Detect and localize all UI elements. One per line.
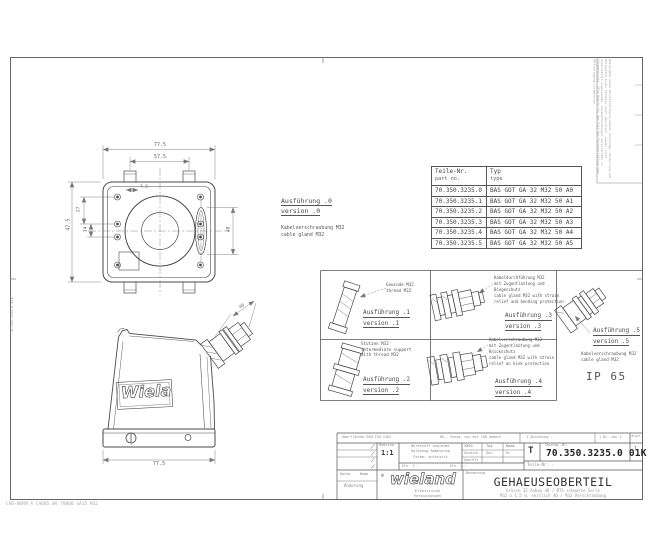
tb-appr-r1c: Rz xyxy=(506,452,510,456)
parts-table-header: Teile-Nr.part no. Typtype xyxy=(432,167,582,186)
tb-t-label: T xyxy=(528,447,533,456)
version-5-subtitle: version .5 xyxy=(593,339,629,347)
part-no-cell: 70.350.3235.3 xyxy=(432,217,487,228)
part-no-cell: 70.350.3235.0 xyxy=(432,186,487,197)
tb-appr-c2: Tag xyxy=(486,445,493,449)
version-3-subtitle: version .3 xyxy=(505,324,541,332)
col-type: Typtype xyxy=(487,167,582,186)
version-5-note-en: cable gland M32 xyxy=(581,358,619,362)
version-1-title: Ausführung .1 xyxy=(363,310,410,318)
type-cell: BAS GOT GA 32 M32 50 A2 xyxy=(487,207,582,218)
part-title: GEHAEUSEOBERTEIL xyxy=(465,476,641,488)
tb-scale-label: Maßstab xyxy=(379,444,394,448)
part-no-cell: 70.350.3235.5 xyxy=(432,238,487,249)
version-0-subtitle: version .0 xyxy=(281,208,320,216)
tb-material-2: Halbzeug Abmessung xyxy=(399,450,462,454)
version-2-note-3: with thread M32 xyxy=(361,353,399,357)
type-cell: BAS GOT GA 32 M32 50 A1 xyxy=(487,196,582,207)
tb-replaces: Ers. f.: xyxy=(402,465,418,469)
table-row: 70.350.3235.2BAS GOT GA 32 M32 50 A2 xyxy=(432,207,582,218)
version-0-title: Ausführung .0 xyxy=(281,198,332,206)
drawing-number: 70.350.3235.0 01K xyxy=(546,449,647,459)
version-3-note-5: relief and bending protection xyxy=(494,300,564,304)
copyright-notice: Weitergabe sowie Vervielfältigung dieser… xyxy=(599,59,611,181)
version-4-note-5: relief an kink protection xyxy=(489,362,549,366)
drawing-sheet: Ausführung .0 version .0 Kabelverschraub… xyxy=(0,0,650,560)
version-2-note-1: Stutzen M32 xyxy=(361,342,389,346)
side-view-wieland-logo: Wielan xyxy=(121,383,172,402)
table-row: 70.350.3235.1BAS GOT GA 32 M32 50 A1 xyxy=(432,196,582,207)
type-cell: BAS GOT GA 32 M32 50 A5 xyxy=(487,238,582,249)
version-4-note-2: mit Zugentlastung und xyxy=(489,344,540,348)
detail-drawing-v3 xyxy=(430,285,486,321)
side-view-drawing xyxy=(103,316,257,447)
version-3-note-2: mit Zugentlastung und xyxy=(494,282,545,286)
part-no-cell: 70.350.3235.2 xyxy=(432,207,487,218)
part-no-cell: 70.350.3235.4 xyxy=(432,228,487,239)
tb-part-no-label: Teile-Nr. - xyxy=(527,463,554,467)
detail-drawing-v2 xyxy=(327,342,365,396)
dim-side-width: 77.5 xyxy=(149,462,169,467)
dim-tab-offset: 7.5 xyxy=(140,186,148,191)
version-4-note-1: Kabelverschraubung M32 xyxy=(489,338,542,342)
logo-tagline-2: Verbindungen xyxy=(400,494,455,498)
tb-rev-datum: Datum xyxy=(340,473,350,477)
version-3-title: Ausführung .3 xyxy=(505,313,552,321)
version-1-note-de: Gewinde M32 xyxy=(386,283,414,287)
cad-footer-reference: CAD-NORM_A CAD05 WV 70000 GA15 M32 xyxy=(6,503,98,508)
version-3-note-1: Kabeldurchführung M32 xyxy=(494,276,545,280)
left-edge-reference: 70.350.3235.0 01K xyxy=(11,228,15,333)
detail-drawing-v4 xyxy=(427,348,489,386)
tb-appr-r2a: Geprüft xyxy=(464,459,478,463)
version-1-note-en: thread M32 xyxy=(386,289,411,293)
tb-note-r1: 1 Zeichnung - xyxy=(526,436,553,440)
tb-sheet-label: Blatt xyxy=(632,435,641,438)
tb-note-left: Oberflächen DIN ISO 1302 xyxy=(342,436,391,440)
version-5-note-de: Kabelverschraubung M32 xyxy=(581,352,636,356)
side-view-gland xyxy=(201,316,257,368)
ip-rating: IP 65 xyxy=(586,371,627,383)
tb-scale-value: 1:1 xyxy=(381,450,394,457)
type-cell: BAS GOT GA 32 M32 50 A0 xyxy=(487,186,582,197)
dim-height: 47.5 xyxy=(66,219,71,231)
tb-note-r2: 1 Bl. von 1 xyxy=(599,436,621,440)
version-2-subtitle: version .2 xyxy=(363,388,399,396)
tb-rev-aenderung: Änderung xyxy=(344,484,363,488)
wieland-logo: wieland xyxy=(390,472,456,488)
tb-appr-r1a: Gezeich. xyxy=(464,452,480,456)
version-5-title: Ausführung .5 xyxy=(593,328,640,336)
tb-appr-r1b: Dez. xyxy=(486,452,494,456)
table-row: 70.350.3235.3BAS GOT GA 32 M32 50 A3 xyxy=(432,217,582,228)
version-3-note-3: Biegeschutz xyxy=(494,288,521,292)
version-3-note-4: cable gland M32 with strain xyxy=(494,294,559,298)
version-0-note-en: cable gland M32 xyxy=(281,233,324,238)
table-row: 70.350.3235.5BAS GOT GA 32 M32 50 A5 xyxy=(432,238,582,249)
version-4-subtitle: version .4 xyxy=(495,390,531,398)
top-view-drawing xyxy=(88,168,230,295)
part-subtitle-2: M32 x 1,5 m. seitlich 40 / M32 Verschrau… xyxy=(465,494,641,498)
version-1-subtitle: version .1 xyxy=(363,321,399,329)
tb-note-mid: DK - Zchng. nur mit CAD ändern xyxy=(440,436,501,440)
type-cell: BAS GOT GA 32 M32 50 A4 xyxy=(487,228,582,239)
version-4-note-3: Knickschutz xyxy=(489,350,516,354)
detail-drawing-v5 xyxy=(555,282,611,333)
dim-top-outer: 77.5 xyxy=(150,143,170,148)
tb-appr-c3: Name xyxy=(506,445,515,449)
table-row: 70.350.3235.0BAS GOT GA 32 M32 50 A0 xyxy=(432,186,582,197)
version-0-note-de: Kabelverschraubung M32 xyxy=(281,226,345,231)
version-4-note-4: cable gland M32 with strain xyxy=(489,356,554,360)
type-cell: BAS GOT GA 32 M32 50 A3 xyxy=(487,217,582,228)
tb-rev-name: Name xyxy=(360,473,368,477)
dim-hole-b: 14 xyxy=(84,227,89,232)
dim-ellipse: 40 xyxy=(227,227,232,232)
tb-material-3: Farbe: anthrazit xyxy=(399,456,462,460)
version-4-title: Ausführung .4 xyxy=(495,379,542,387)
detail-drawing-v1 xyxy=(328,281,361,334)
tb-replaced-by: Ers. d.: xyxy=(450,465,466,469)
parts-table: Teile-Nr.part no. Typtype 70.350.3235.0B… xyxy=(431,166,582,249)
tb-material-1: Werkstoff und/oder xyxy=(399,445,462,449)
corner-step xyxy=(119,252,139,270)
col-part-no: Teile-Nr.part no. xyxy=(432,167,487,186)
part-no-cell: 70.350.3235.1 xyxy=(432,196,487,207)
table-row: 70.350.3235.4BAS GOT GA 32 M32 50 A4 xyxy=(432,228,582,239)
dim-hole-a: 27 xyxy=(77,207,82,212)
tb-appr-c1: 2003 xyxy=(464,445,473,449)
version-2-title: Ausführung .2 xyxy=(363,377,410,385)
dim-top-inner: 57.5 xyxy=(150,155,170,160)
mounting-tabs xyxy=(124,171,195,293)
registered-mark-icon: ® xyxy=(381,474,384,479)
tb-drawing-no-label: Zeichng.-Nr. xyxy=(545,444,568,447)
